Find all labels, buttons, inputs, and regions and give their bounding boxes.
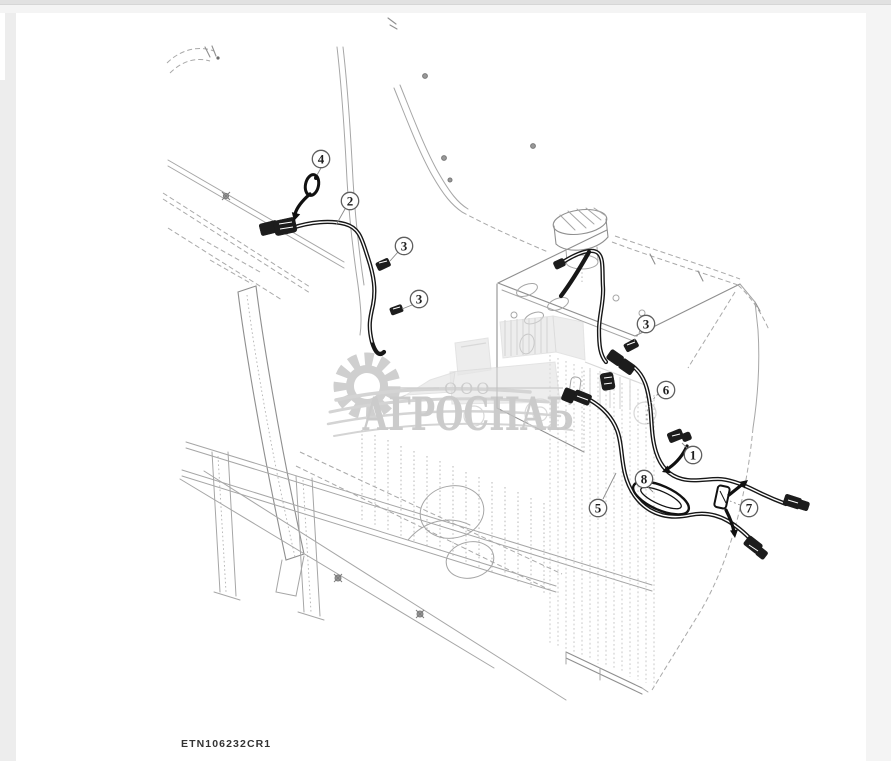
drawing-code: ETN106232CR1 xyxy=(181,738,271,750)
connector-cable-5-end xyxy=(743,535,768,560)
callout-6: 6 xyxy=(657,381,674,398)
left-panel-fragment xyxy=(0,13,5,80)
svg-text:8: 8 xyxy=(641,471,648,486)
connector-1 xyxy=(667,428,692,443)
grommet-4 xyxy=(303,173,320,196)
callout-2: 2 xyxy=(341,192,358,209)
chassis-frame-lineart xyxy=(163,18,652,700)
svg-text:3: 3 xyxy=(416,291,423,306)
fuel-tank-lineart xyxy=(497,206,769,694)
page: ООО АГРОСНАБ xyxy=(0,0,891,761)
cover-7 xyxy=(714,485,730,509)
callout-1: 1 xyxy=(684,446,701,463)
svg-text:1: 1 xyxy=(690,447,697,462)
callout-7: 7 xyxy=(740,499,757,516)
svg-text:3: 3 xyxy=(401,238,408,253)
svg-text:5: 5 xyxy=(595,500,602,515)
clip-3c xyxy=(623,338,640,353)
svg-text:6: 6 xyxy=(663,382,670,397)
svg-text:2: 2 xyxy=(347,193,354,208)
callout-3a: 3 xyxy=(395,237,412,254)
svg-text:3: 3 xyxy=(643,316,650,331)
connector-cable-2 xyxy=(259,217,298,236)
callout-3c: 3 xyxy=(637,315,654,332)
callout-4: 4 xyxy=(312,150,329,167)
clip-3a xyxy=(375,257,391,271)
connector-cable-6 xyxy=(783,494,810,512)
diagram-viewport: ООО АГРОСНАБ xyxy=(16,13,866,761)
callout-5: 5 xyxy=(589,499,606,516)
window-secondary-bar xyxy=(0,5,891,13)
callout-3b: 3 xyxy=(410,290,427,307)
parts-diagram-canvas: ООО АГРОСНАБ xyxy=(16,13,866,761)
svg-text:4: 4 xyxy=(318,151,325,166)
right-gutter xyxy=(866,13,891,761)
arrow-1-icon xyxy=(662,446,687,473)
clip-3b xyxy=(389,304,404,316)
svg-text:7: 7 xyxy=(746,500,753,515)
callout-8: 8 xyxy=(635,470,652,487)
arrow-4-icon xyxy=(292,194,310,221)
watermark-company-text: АГРОСНАБ xyxy=(362,387,574,441)
